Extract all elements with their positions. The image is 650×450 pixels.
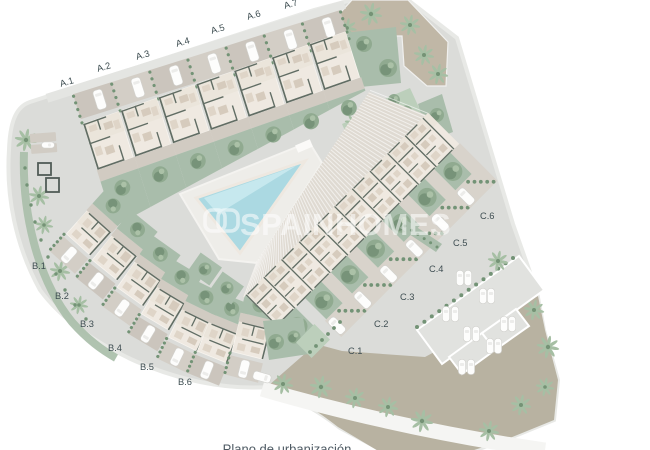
- svg-text:Plano de urbanización: Plano de urbanización: [223, 442, 352, 450]
- svg-text:SPAINHOMES: SPAINHOMES: [240, 207, 451, 242]
